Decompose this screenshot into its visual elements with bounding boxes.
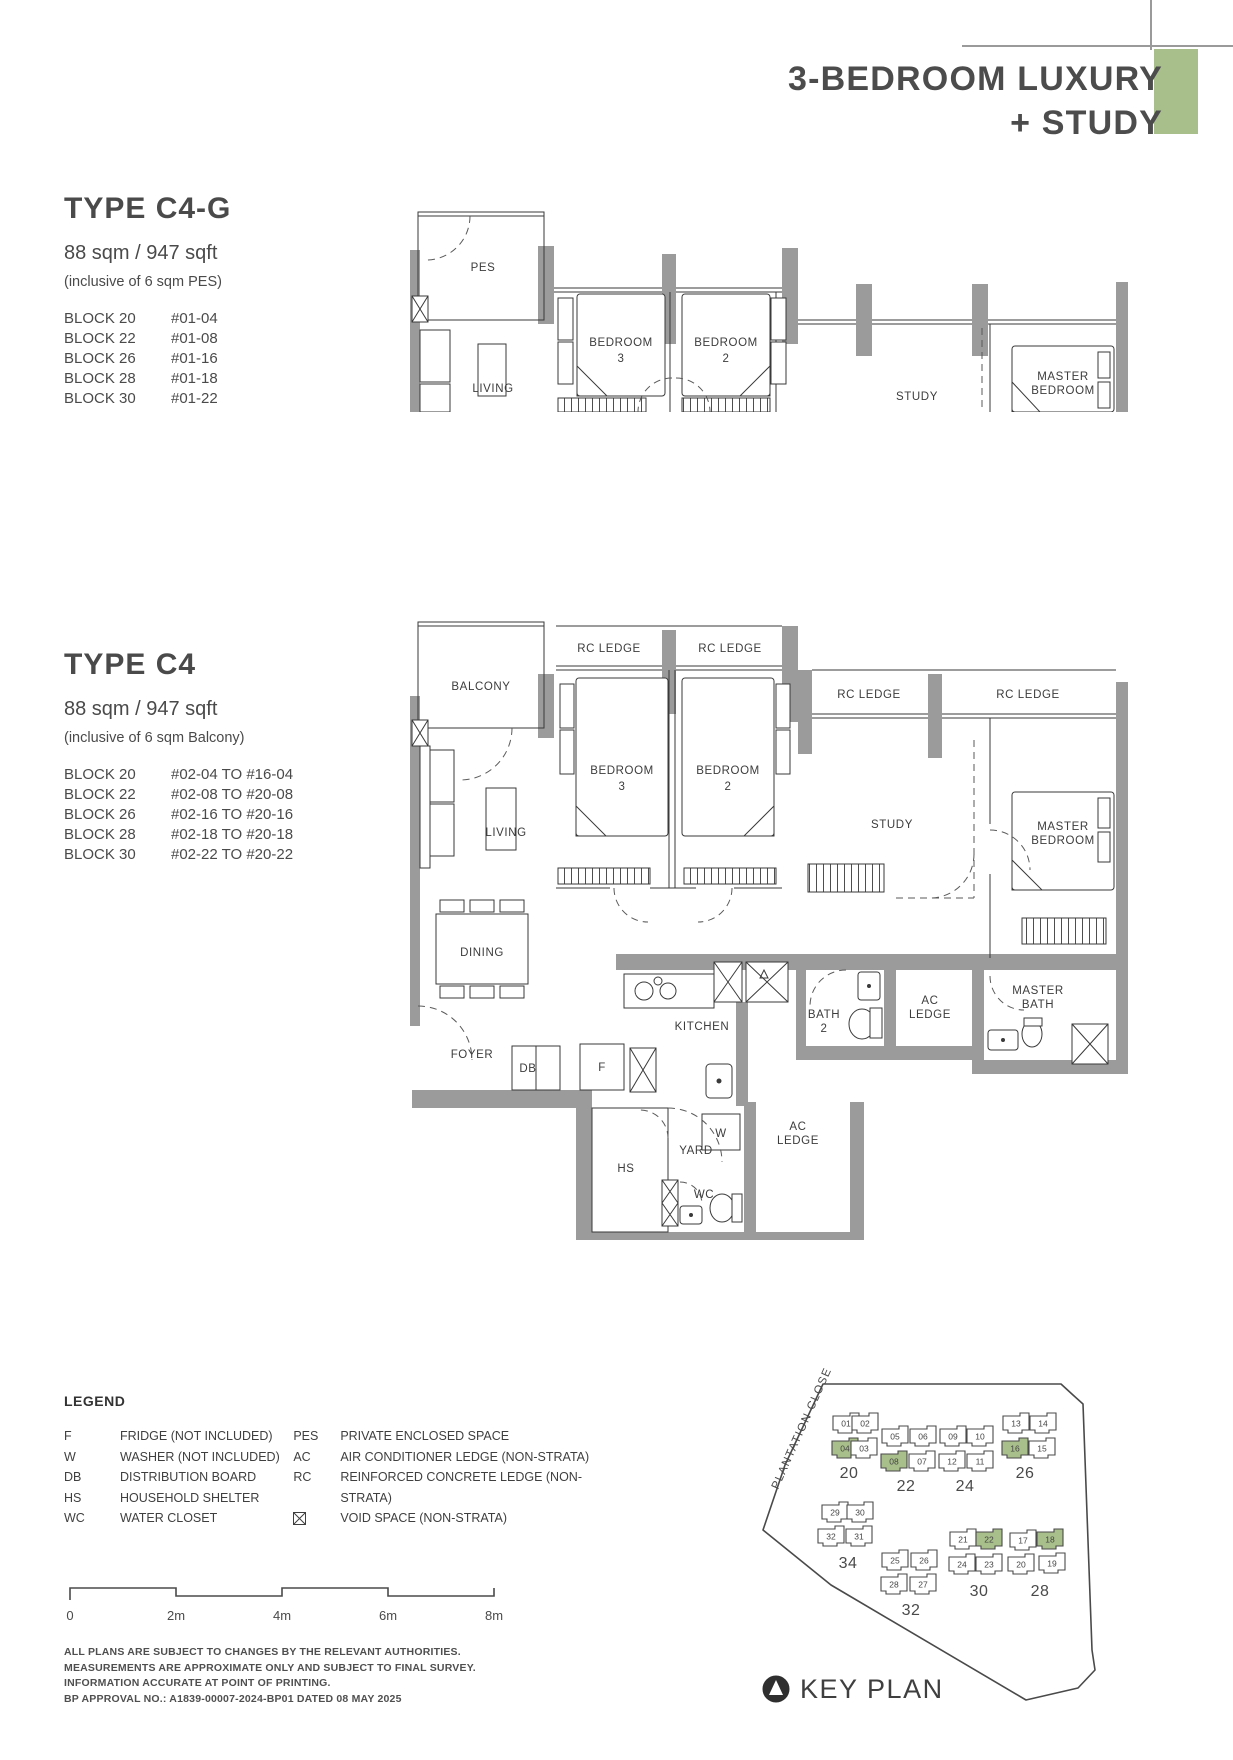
room-label-study: STUDY — [871, 819, 913, 831]
svg-text:BATH: BATH — [1022, 999, 1054, 1011]
room-label-yard: YARD — [679, 1145, 713, 1157]
block-row: BLOCK 22#02-08 TO #20-08 — [64, 785, 374, 805]
room-label-kitchen: KITCHEN — [675, 1021, 730, 1033]
keyplan-unit-number: 03 — [859, 1444, 869, 1454]
room-label-pes: PES — [471, 262, 496, 274]
keyplan-label: KEY PLAN — [800, 1674, 944, 1704]
room-label-wc: WC — [694, 1189, 714, 1201]
type-c4g-info: TYPE C4-G 88 sqm / 947 sqft (inclusive o… — [64, 192, 374, 409]
legend-row: DBDISTRIBUTION BOARD — [64, 1467, 293, 1488]
keyplan-logo-icon — [763, 1676, 789, 1702]
room-label-balcony: BALCONY — [451, 681, 510, 693]
room-label-ac-ledge: AC — [789, 1121, 806, 1133]
keyplan-unit-number: 09 — [948, 1432, 958, 1442]
door-arc — [460, 728, 512, 780]
legend-row: FFRIDGE (NOT INCLUDED) — [64, 1426, 293, 1447]
void-space-icon — [630, 1048, 656, 1092]
wardrobe-icon — [1022, 918, 1106, 944]
room-label-bedroom2: BEDROOM — [696, 765, 760, 777]
keyplan-unit-number: 18 — [1045, 1535, 1055, 1545]
legend-row: WWASHER (NOT INCLUDED) — [64, 1447, 293, 1468]
block-row: BLOCK 22#01-08 — [64, 329, 374, 349]
svg-text:2: 2 — [725, 781, 732, 793]
keyplan-block-22: 22 — [897, 1478, 916, 1495]
svg-text:2: 2 — [723, 353, 730, 365]
disclaimer-line: BP APPROVAL NO.: A1839-00007-2024-BP01 D… — [64, 1692, 476, 1708]
type-c4g-area: 88 sqm / 947 sqft — [64, 242, 374, 265]
key-plan: PLANTATION CLOSE 01020403200506080722091… — [678, 1232, 1233, 1728]
legend-title: LEGEND — [64, 1393, 624, 1409]
floorplan-type-c4: BALCONY RC LEDGE RC LEDGE RC LEDGE RC LE… — [372, 578, 1130, 1240]
keyplan-unit-number: 04 — [840, 1444, 850, 1454]
block-row: BLOCK 28#01-18 — [64, 369, 374, 389]
header-rule-vertical — [1150, 0, 1152, 50]
keyplan-block-28: 28 — [1031, 1583, 1050, 1600]
disclaimer-line: MEASUREMENTS ARE APPROXIMATE ONLY AND SU… — [64, 1661, 476, 1677]
block-row: BLOCK 28#02-18 TO #20-18 — [64, 825, 374, 845]
legend-column-1: FFRIDGE (NOT INCLUDED) WWASHER (NOT INCL… — [64, 1426, 293, 1529]
room-label-master-bath: MASTER — [1012, 985, 1064, 997]
wardrobe-icon — [558, 398, 646, 412]
legend-row: RCREINFORCED CONCRETE LEDGE (NON-STRATA) — [293, 1467, 624, 1508]
room-label-bedroom3: BEDROOM — [589, 337, 653, 349]
keyplan-unit-number: 30 — [855, 1508, 865, 1518]
room-label-washer: W — [715, 1128, 726, 1140]
door-arc — [426, 216, 470, 260]
keyplan-unit-number: 29 — [830, 1508, 840, 1518]
svg-text:3: 3 — [619, 781, 626, 793]
page-title-line2: + STUDY — [788, 101, 1163, 145]
type-c4-area: 88 sqm / 947 sqft — [64, 698, 374, 721]
keyplan-unit-number: 17 — [1018, 1536, 1028, 1546]
block-row: BLOCK 26#02-16 TO #20-16 — [64, 805, 374, 825]
legend-row: VOID SPACE (NON-STRATA) — [293, 1508, 624, 1529]
legend-row: ACAIR CONDITIONER LEDGE (NON-STRATA) — [293, 1447, 624, 1468]
keyplan-unit-number: 16 — [1010, 1444, 1020, 1454]
room-label-master: MASTER — [1037, 371, 1089, 383]
wardrobe-icon — [558, 868, 650, 884]
room-label-rc-ledge: RC LEDGE — [698, 643, 762, 655]
svg-text:LEDGE: LEDGE — [777, 1135, 819, 1147]
keyplan-unit-number: 02 — [860, 1419, 870, 1429]
keyplan-unit-number: 01 — [841, 1419, 851, 1429]
legend-row: PESPRIVATE ENCLOSED SPACE — [293, 1426, 624, 1447]
header-rule-horizontal — [962, 45, 1233, 47]
room-label-master: MASTER — [1037, 821, 1089, 833]
room-label-bedroom2: BEDROOM — [694, 337, 758, 349]
keyplan-unit-number: 05 — [890, 1432, 900, 1442]
scale-tick: 4m — [273, 1608, 291, 1623]
page-title: 3-BEDROOM LUXURY + STUDY — [788, 57, 1163, 145]
keyplan-unit-number: 13 — [1011, 1419, 1021, 1429]
room-label-foyer: FOYER — [451, 1049, 494, 1061]
page-title-line1: 3-BEDROOM LUXURY — [788, 57, 1163, 101]
brochure-page: 3-BEDROOM LUXURY + STUDY TYPE C4-G 88 sq… — [0, 0, 1233, 1760]
disclaimer: ALL PLANS ARE SUBJECT TO CHANGES BY THE … — [64, 1645, 476, 1707]
type-c4g-blocks: BLOCK 20#01-04 BLOCK 22#01-08 BLOCK 26#0… — [64, 309, 374, 409]
keyplan-unit-number: 06 — [918, 1432, 928, 1442]
block-row: BLOCK 20#02-04 TO #16-04 — [64, 765, 374, 785]
keyplan-unit-number: 15 — [1037, 1444, 1047, 1454]
void-space-icon — [662, 1180, 678, 1226]
void-space-icon — [412, 720, 428, 746]
keyplan-unit-number: 25 — [890, 1556, 900, 1566]
room-label-rc-ledge: RC LEDGE — [996, 689, 1060, 701]
keyplan-unit-number: 07 — [917, 1457, 927, 1467]
keyplan-unit-number: 27 — [918, 1580, 928, 1590]
bedroom2-furniture — [682, 294, 786, 412]
keyplan-units: 0102040320050608072209101211241314161526… — [818, 1413, 1065, 1619]
sofa-icon — [430, 750, 454, 802]
keyplan-unit-number: 32 — [826, 1532, 836, 1542]
scale-tick: 0 — [66, 1608, 73, 1623]
keyplan-unit-number: 22 — [984, 1535, 994, 1545]
keyplan-block-24: 24 — [956, 1478, 975, 1495]
bedroom3-furniture — [558, 294, 665, 412]
shelf-icon — [808, 864, 884, 892]
wardrobe-icon — [684, 868, 776, 884]
keyplan-unit-number: 21 — [958, 1535, 968, 1545]
keyplan-unit-number: 28 — [889, 1580, 899, 1590]
disclaimer-line: INFORMATION ACCURATE AT POINT OF PRINTIN… — [64, 1676, 476, 1692]
door-arc — [810, 970, 846, 1006]
keyplan-unit-number: 19 — [1047, 1559, 1057, 1569]
type-c4g-name: TYPE C4-G — [64, 192, 374, 226]
keyplan-unit-number: 20 — [1016, 1560, 1026, 1570]
room-label-rc-ledge: RC LEDGE — [837, 689, 901, 701]
room-label-dining: DINING — [460, 947, 504, 959]
bedroom3-furniture — [558, 678, 668, 884]
legend: LEGEND FFRIDGE (NOT INCLUDED) WWASHER (N… — [64, 1393, 624, 1529]
bedroom2-furniture — [682, 678, 790, 884]
room-label-living: LIVING — [485, 827, 526, 839]
room-label-bath2: BATH — [808, 1009, 840, 1021]
keyplan-block-20: 20 — [840, 1465, 859, 1482]
keyplan-unit-number: 12 — [947, 1457, 957, 1467]
type-c4g-note: (inclusive of 6 sqm PES) — [64, 274, 374, 290]
block-row: BLOCK 20#01-04 — [64, 309, 374, 329]
keyplan-unit-number: 11 — [976, 1457, 985, 1467]
keyplan-unit-number: 24 — [957, 1560, 967, 1570]
room-label-bedroom3: BEDROOM — [590, 765, 654, 777]
type-c4-info: TYPE C4 88 sqm / 947 sqft (inclusive of … — [64, 648, 374, 865]
keyplan-unit-number: 10 — [975, 1432, 985, 1442]
keyplan-block-32: 32 — [902, 1602, 921, 1619]
void-space-icon — [412, 296, 428, 322]
room-label-db: DB — [519, 1063, 536, 1075]
scale-bar: 0 2m 4m 6m 8m — [58, 1582, 518, 1628]
scale-tick: 2m — [167, 1608, 185, 1623]
svg-text:BEDROOM: BEDROOM — [1031, 835, 1095, 847]
room-label-hs: HS — [617, 1163, 634, 1175]
type-c4-name: TYPE C4 — [64, 648, 374, 682]
room-label-study: STUDY — [896, 391, 938, 403]
block-row: BLOCK 26#01-16 — [64, 349, 374, 369]
stove-icon — [624, 974, 714, 1008]
svg-text:3: 3 — [618, 353, 625, 365]
disclaimer-line: ALL PLANS ARE SUBJECT TO CHANGES BY THE … — [64, 1645, 476, 1661]
block-row: BLOCK 30#02-22 TO #20-22 — [64, 845, 374, 865]
keyplan-block-34: 34 — [839, 1555, 858, 1572]
legend-row: HSHOUSEHOLD SHELTER — [64, 1488, 293, 1509]
yard-furniture — [662, 1114, 742, 1226]
keyplan-block-30: 30 — [970, 1583, 989, 1600]
type-c4-blocks: BLOCK 20#02-04 TO #16-04 BLOCK 22#02-08 … — [64, 765, 374, 865]
master-furniture — [1012, 792, 1114, 944]
street-label: PLANTATION CLOSE — [770, 1366, 835, 1491]
scale-tick: 6m — [379, 1608, 397, 1623]
svg-text:2: 2 — [821, 1023, 828, 1035]
living-furniture — [420, 746, 516, 868]
legend-column-2: PESPRIVATE ENCLOSED SPACE ACAIR CONDITIO… — [293, 1426, 624, 1529]
scale-tick: 8m — [485, 1608, 503, 1623]
floorplan-type-c4g: PES LIVING BEDROOM 3 BEDROOM 2 STUDY MAS… — [372, 170, 1130, 412]
keyplan-unit-number: 31 — [854, 1532, 864, 1542]
room-label-ac-ledge: AC — [921, 995, 938, 1007]
keyplan-unit-number: 14 — [1038, 1419, 1048, 1429]
legend-row: WCWATER CLOSET — [64, 1508, 293, 1529]
type-c4-note: (inclusive of 6 sqm Balcony) — [64, 730, 374, 746]
room-label-rc-ledge: RC LEDGE — [577, 643, 641, 655]
keyplan-unit-number: 08 — [889, 1457, 899, 1467]
void-space-icon — [293, 1512, 306, 1525]
keyplan-block-26: 26 — [1016, 1465, 1035, 1482]
bed-icon — [576, 678, 668, 836]
svg-text:BEDROOM: BEDROOM — [1031, 385, 1095, 397]
sofa-icon — [420, 330, 450, 412]
room-label-fridge: F — [598, 1062, 606, 1074]
tv-console-icon — [486, 788, 516, 850]
bed-icon — [682, 678, 774, 836]
room-label-living: LIVING — [472, 383, 513, 395]
block-row: BLOCK 30#01-22 — [64, 389, 374, 409]
wardrobe-icon — [682, 398, 770, 412]
svg-text:LEDGE: LEDGE — [909, 1009, 951, 1021]
keyplan-unit-number: 23 — [984, 1560, 994, 1570]
keyplan-unit-number: 26 — [919, 1556, 929, 1566]
